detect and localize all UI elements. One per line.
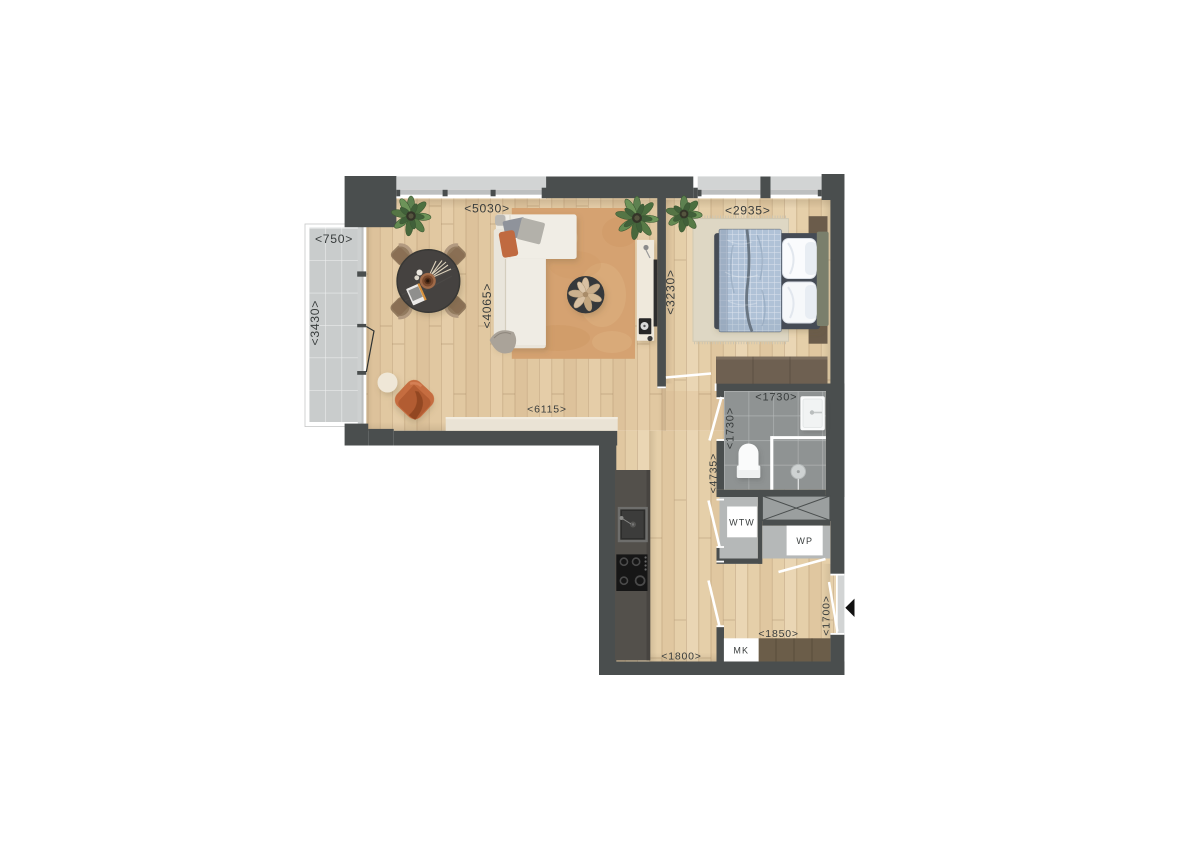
svg-text:<6115>: <6115>: [527, 404, 567, 416]
svg-text:<1850>: <1850>: [758, 628, 798, 640]
svg-text:WTW: WTW: [729, 518, 755, 528]
svg-text:<3430>: <3430>: [308, 300, 322, 346]
svg-text:<1800>: <1800>: [661, 650, 701, 662]
svg-text:<1700>: <1700>: [821, 595, 833, 635]
svg-text:WP: WP: [796, 536, 813, 546]
svg-text:MK: MK: [733, 646, 749, 656]
svg-text:<4735>: <4735>: [708, 453, 720, 493]
svg-text:<3230>: <3230>: [664, 269, 678, 315]
svg-text:<1730>: <1730>: [755, 391, 797, 403]
svg-text:<750>: <750>: [315, 232, 353, 246]
svg-text:<5030>: <5030>: [464, 202, 510, 216]
svg-text:<2935>: <2935>: [725, 204, 771, 218]
svg-text:<4065>: <4065>: [480, 283, 494, 329]
svg-text:<1730>: <1730>: [725, 407, 737, 449]
